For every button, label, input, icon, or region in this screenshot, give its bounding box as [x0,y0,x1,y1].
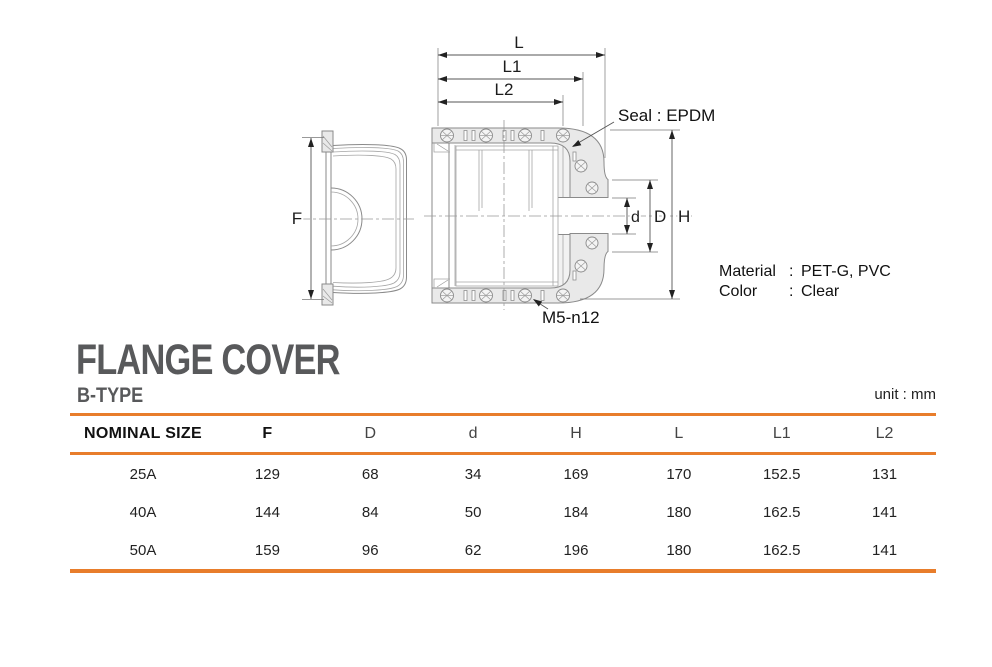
material-notes: Material:PET-G, PVC Color:Clear [719,262,891,302]
page-subtitle: B-TYPE [77,384,143,408]
color-value: Clear [801,282,839,302]
table-row-50A: 50A 159 96 62 196 180 162.5 141 [70,531,936,569]
row-L: 180 [627,493,730,531]
section-view [424,120,692,310]
flange-lug-bottom [322,284,333,305]
header-nominal-size: NOMINAL SIZE [70,416,216,452]
row-H: 196 [525,531,628,569]
row-size: 50A [70,531,216,569]
page-title: FLANGE COVER [76,336,340,385]
row-L: 170 [627,455,730,493]
dim-L1-label: L1 [503,57,522,76]
row-L2: 141 [833,531,936,569]
dim-F-label: F [292,209,302,228]
bolt-spec-label: M5-n12 [542,308,600,327]
table-row-40A: 40A 144 84 50 184 180 162.5 141 [70,493,936,531]
spec-table: NOMINAL SIZE F D d H L L1 L2 25A 129 68 … [70,416,936,573]
dim-D-label: D [654,207,666,226]
dim-L: L [438,33,605,58]
row-D: 84 [319,493,422,531]
dim-L2: L2 [438,80,563,105]
dim-F: F [292,138,324,300]
table-header-row: NOMINAL SIZE F D d H L L1 L2 [70,416,936,452]
header-H: H [525,416,628,452]
dim-D: D [647,180,666,252]
row-D: 96 [319,531,422,569]
dim-d: d [624,198,640,234]
dim-d-label: d [631,209,640,226]
row-L1: 162.5 [730,493,833,531]
dim-L2-label: L2 [495,80,514,99]
header-F: F [216,416,319,452]
row-F: 144 [216,493,319,531]
row-F: 159 [216,531,319,569]
row-F: 129 [216,455,319,493]
table-row-25A: 25A 129 68 34 169 170 152.5 131 [70,455,936,493]
row-L2: 131 [833,455,936,493]
row-H: 184 [525,493,628,531]
row-d: 34 [422,455,525,493]
dim-H: H [669,130,690,299]
material-separator: : [789,262,801,282]
row-d: 50 [422,493,525,531]
row-H: 169 [525,455,628,493]
row-L1: 162.5 [730,531,833,569]
material-value: PET-G, PVC [801,262,891,282]
flange-lug-top [322,131,333,152]
header-L: L [627,416,730,452]
color-separator: : [789,282,801,302]
unit-note: unit : mm [874,386,936,403]
dim-L1: L1 [438,57,583,82]
header-d: d [422,416,525,452]
dim-L-label: L [514,33,523,52]
header-D: D [319,416,422,452]
side-view: F [292,131,414,305]
row-d: 62 [422,531,525,569]
row-D: 68 [319,455,422,493]
dim-H-label: H [678,207,690,226]
color-label: Color [719,282,789,302]
color-row: Color:Clear [719,282,891,302]
seal-label: Seal : EPDM [618,106,715,125]
material-row: Material:PET-G, PVC [719,262,891,282]
table-bottom-rule [70,569,936,573]
row-L2: 141 [833,493,936,531]
row-size: 25A [70,455,216,493]
row-L1: 152.5 [730,455,833,493]
material-label: Material [719,262,789,282]
header-L1: L1 [730,416,833,452]
row-L: 180 [627,531,730,569]
header-L2: L2 [833,416,936,452]
row-size: 40A [70,493,216,531]
